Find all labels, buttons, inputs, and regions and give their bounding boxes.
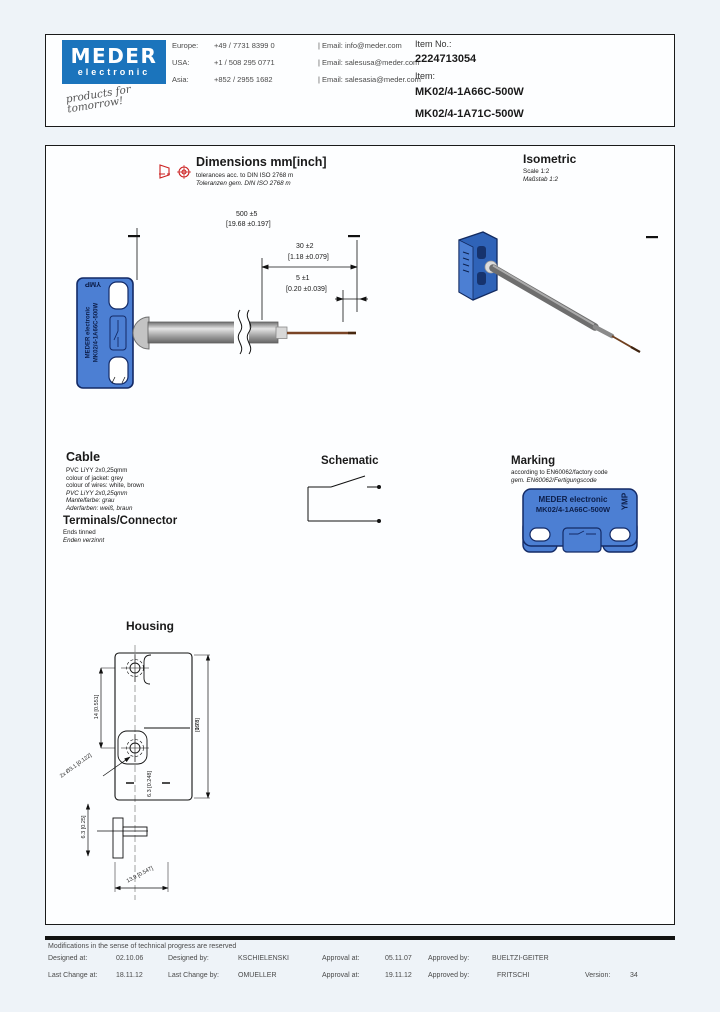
contact-email-europe: | Email: info@meder.com [318,42,402,50]
cable-line-en-3: colour of wires: white, brown [66,483,144,490]
marking-side-marking: YMP [621,490,630,514]
item-value-2: MK02/4-1A71C-500W [415,108,524,120]
item-no-value: 2224713054 [415,53,476,65]
sensor-label-line2: MK02/4-1A66C-500W [93,278,101,388]
housing-dim-depth: 6.3 [0.25] [81,787,87,867]
contact-region-asia: Asia: [172,76,189,84]
sensor-label-2d: MEDER electronic MK02/4-1A66C-500W [86,278,101,388]
logo-electronic-text: electronic [78,67,151,78]
last-change-by-label: Last Change by: [168,972,219,980]
isometric-scale-de: Maßstab 1:2 [523,177,558,184]
designed-by-label: Designed by: [168,955,209,963]
contact-region-europe: Europe: [172,42,198,50]
dim-cable-mm: 500 ±5 [236,211,257,219]
item-value-1: MK02/4-1A66C-500W [415,86,524,98]
approved-by-label-2: Approved by: [428,972,469,980]
version-label: Version: [585,972,610,980]
isometric-scale-en: Scale 1:2 [523,169,549,176]
tolerance-line-de: Toleranzen gem. DIN ISO 2768 m [196,181,291,188]
approval-at-label-2: Approval at: [322,972,359,980]
dim-tin-mm: 5 ±1 [296,275,310,283]
housing-dim-gap: 6.3 [0.248] [147,744,153,824]
dim-cable-inch: [19.68 ±0.197] [226,221,271,229]
last-change-by-value: OMUELLER [238,972,277,980]
contact-region-usa: USA: [172,59,190,67]
last-change-at-value: 18.11.12 [116,972,143,980]
tolerance-line-en: tolerances acc. to DIN ISO 2768 m [196,173,293,180]
contact-email-asia: | Email: salesasia@meder.com [318,76,421,84]
approval-at-value-2: 19.11.12 [385,972,412,980]
approval-at-value-1: 05.11.07 [385,955,412,963]
cable-line-en-1: PVC LiYY 2x0,25qmm [66,468,127,475]
dimensions-title: Dimensions mm[inch] [196,156,327,170]
contact-phone-usa: +1 / 508 295 0771 [214,59,275,67]
marking-line-de: gem. EN60062/Fertigungscode [511,478,597,485]
approved-by-label-1: Approved by: [428,955,469,963]
cable-line-de-3: Aderfarben: weiß, braun [66,506,132,513]
meder-logo: MEDER electronic [62,40,166,84]
dim-strip-mm: 30 ±2 [296,243,313,251]
terminals-line-de: Enden verzinnt [63,538,104,545]
footer-divider [45,936,675,940]
housing-dim-hole-spacing: 14 [0.551] [94,667,100,747]
dim-tin-inch: [0.20 ±0.039] [286,286,327,294]
schematic-title: Schematic [321,455,379,468]
housing-title: Housing [126,620,174,633]
approved-by-value-1: BUELTZI-GEITER [492,955,549,963]
approval-at-label-1: Approval at: [322,955,359,963]
logo-meder-text: MEDER [71,46,158,67]
designed-at-value: 02.10.06 [116,955,143,963]
datasheet-page: MEDER electronic products for tomorrow! … [0,0,720,1012]
footer-note: Modifications in the sense of technical … [48,943,236,951]
item-no-label: Item No.: [415,40,452,50]
cable-title: Cable [66,451,100,465]
marking-title: Marking [511,455,555,468]
terminals-title: Terminals/Connector [63,515,177,528]
designed-by-value: KSCHIELENSKI [238,955,289,963]
isometric-title: Isometric [523,153,576,166]
contact-phone-europe: +49 / 7731 8399 0 [214,42,275,50]
terminals-line-en: Ends tinned [63,530,96,537]
drawing-box [45,145,675,925]
version-value: 34 [630,972,638,980]
last-change-at-label: Last Change at: [48,972,97,980]
housing-dim-height-inch: [0.78] [195,685,201,765]
marking-body-line2: MK02/4-1A66C-500W [513,505,633,514]
dim-strip-inch: [1.18 ±0.079] [288,254,329,262]
sensor-label-line1: MEDER electronic [86,278,94,388]
marking-line-en: according to EN60062/factory code [511,470,608,477]
contact-email-usa: | Email: salesusa@meder.com [318,59,419,67]
designed-at-label: Designed at: [48,955,87,963]
item-label: Item: [415,72,435,82]
approved-by-value-2: FRITSCHI [497,972,529,980]
cable-line-de-2: Mantelfarbe: grau [66,498,115,505]
marking-body-line1: MEDER electronic [513,495,633,504]
contact-phone-asia: +852 / 2955 1682 [214,76,273,84]
